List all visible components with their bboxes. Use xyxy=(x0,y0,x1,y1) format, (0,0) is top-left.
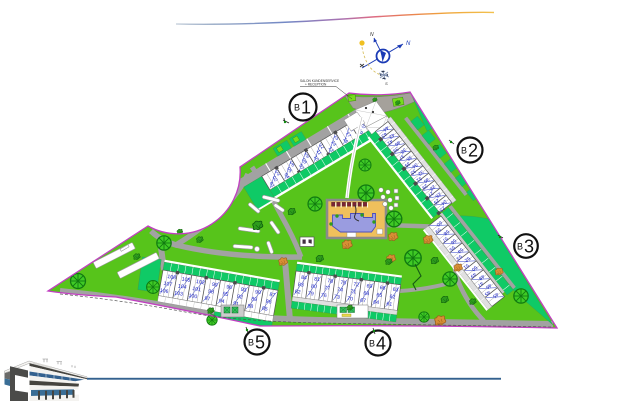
svg-text:79: 79 xyxy=(307,291,314,298)
svg-text:74: 74 xyxy=(337,287,344,294)
svg-text:5: 5 xyxy=(255,333,265,353)
svg-text:81: 81 xyxy=(314,276,321,283)
svg-text:71: 71 xyxy=(350,289,357,296)
svg-text:94: 94 xyxy=(218,298,225,305)
svg-text:89: 89 xyxy=(251,296,258,303)
svg-text:98: 98 xyxy=(208,289,215,296)
svg-text:63: 63 xyxy=(392,287,399,294)
svg-text:B: B xyxy=(461,146,467,156)
svg-text:70: 70 xyxy=(347,296,354,303)
svg-text:78: 78 xyxy=(327,278,334,285)
svg-text:4: 4 xyxy=(376,334,386,354)
svg-text:65: 65 xyxy=(376,292,383,299)
svg-text:2: 2 xyxy=(468,141,478,161)
svg-text:B: B xyxy=(369,339,375,349)
svg-text:95: 95 xyxy=(222,291,229,298)
svg-text:N: N xyxy=(406,41,411,47)
svg-text:84: 84 xyxy=(301,275,308,282)
svg-text:73: 73 xyxy=(334,294,341,301)
svg-text:62: 62 xyxy=(389,294,396,301)
svg-text:83: 83 xyxy=(298,282,305,289)
svg-text:66: 66 xyxy=(379,285,386,292)
svg-text:N: N xyxy=(370,32,374,38)
svg-text:75: 75 xyxy=(340,280,347,287)
svg-text:93: 93 xyxy=(240,287,247,294)
svg-text:92: 92 xyxy=(236,294,243,301)
svg-text:72: 72 xyxy=(353,282,360,289)
svg-text:64: 64 xyxy=(373,299,380,306)
svg-text:87: 87 xyxy=(269,292,276,299)
svg-text:88: 88 xyxy=(247,303,254,310)
svg-text:B: B xyxy=(517,242,523,252)
svg-text:69: 69 xyxy=(366,283,373,290)
svg-text:97: 97 xyxy=(204,296,211,303)
svg-text:+ RECEPTION: + RECEPTION xyxy=(305,83,327,87)
svg-text:68: 68 xyxy=(363,291,370,298)
svg-text:90: 90 xyxy=(255,289,262,296)
svg-text:3: 3 xyxy=(524,237,534,257)
svg-text:76: 76 xyxy=(321,292,328,299)
svg-text:86: 86 xyxy=(265,299,272,306)
svg-text:B: B xyxy=(248,338,254,348)
svg-text:80: 80 xyxy=(311,284,318,291)
svg-text:67: 67 xyxy=(360,298,367,305)
svg-text:S: S xyxy=(385,81,388,86)
svg-text:99: 99 xyxy=(211,282,218,289)
svg-text:B: B xyxy=(294,103,300,113)
svg-text:96: 96 xyxy=(226,284,233,291)
svg-text:82: 82 xyxy=(294,289,301,296)
svg-text:85: 85 xyxy=(261,306,268,313)
svg-text:61: 61 xyxy=(386,301,393,308)
svg-text:77: 77 xyxy=(324,285,331,292)
svg-text:1: 1 xyxy=(301,98,311,118)
